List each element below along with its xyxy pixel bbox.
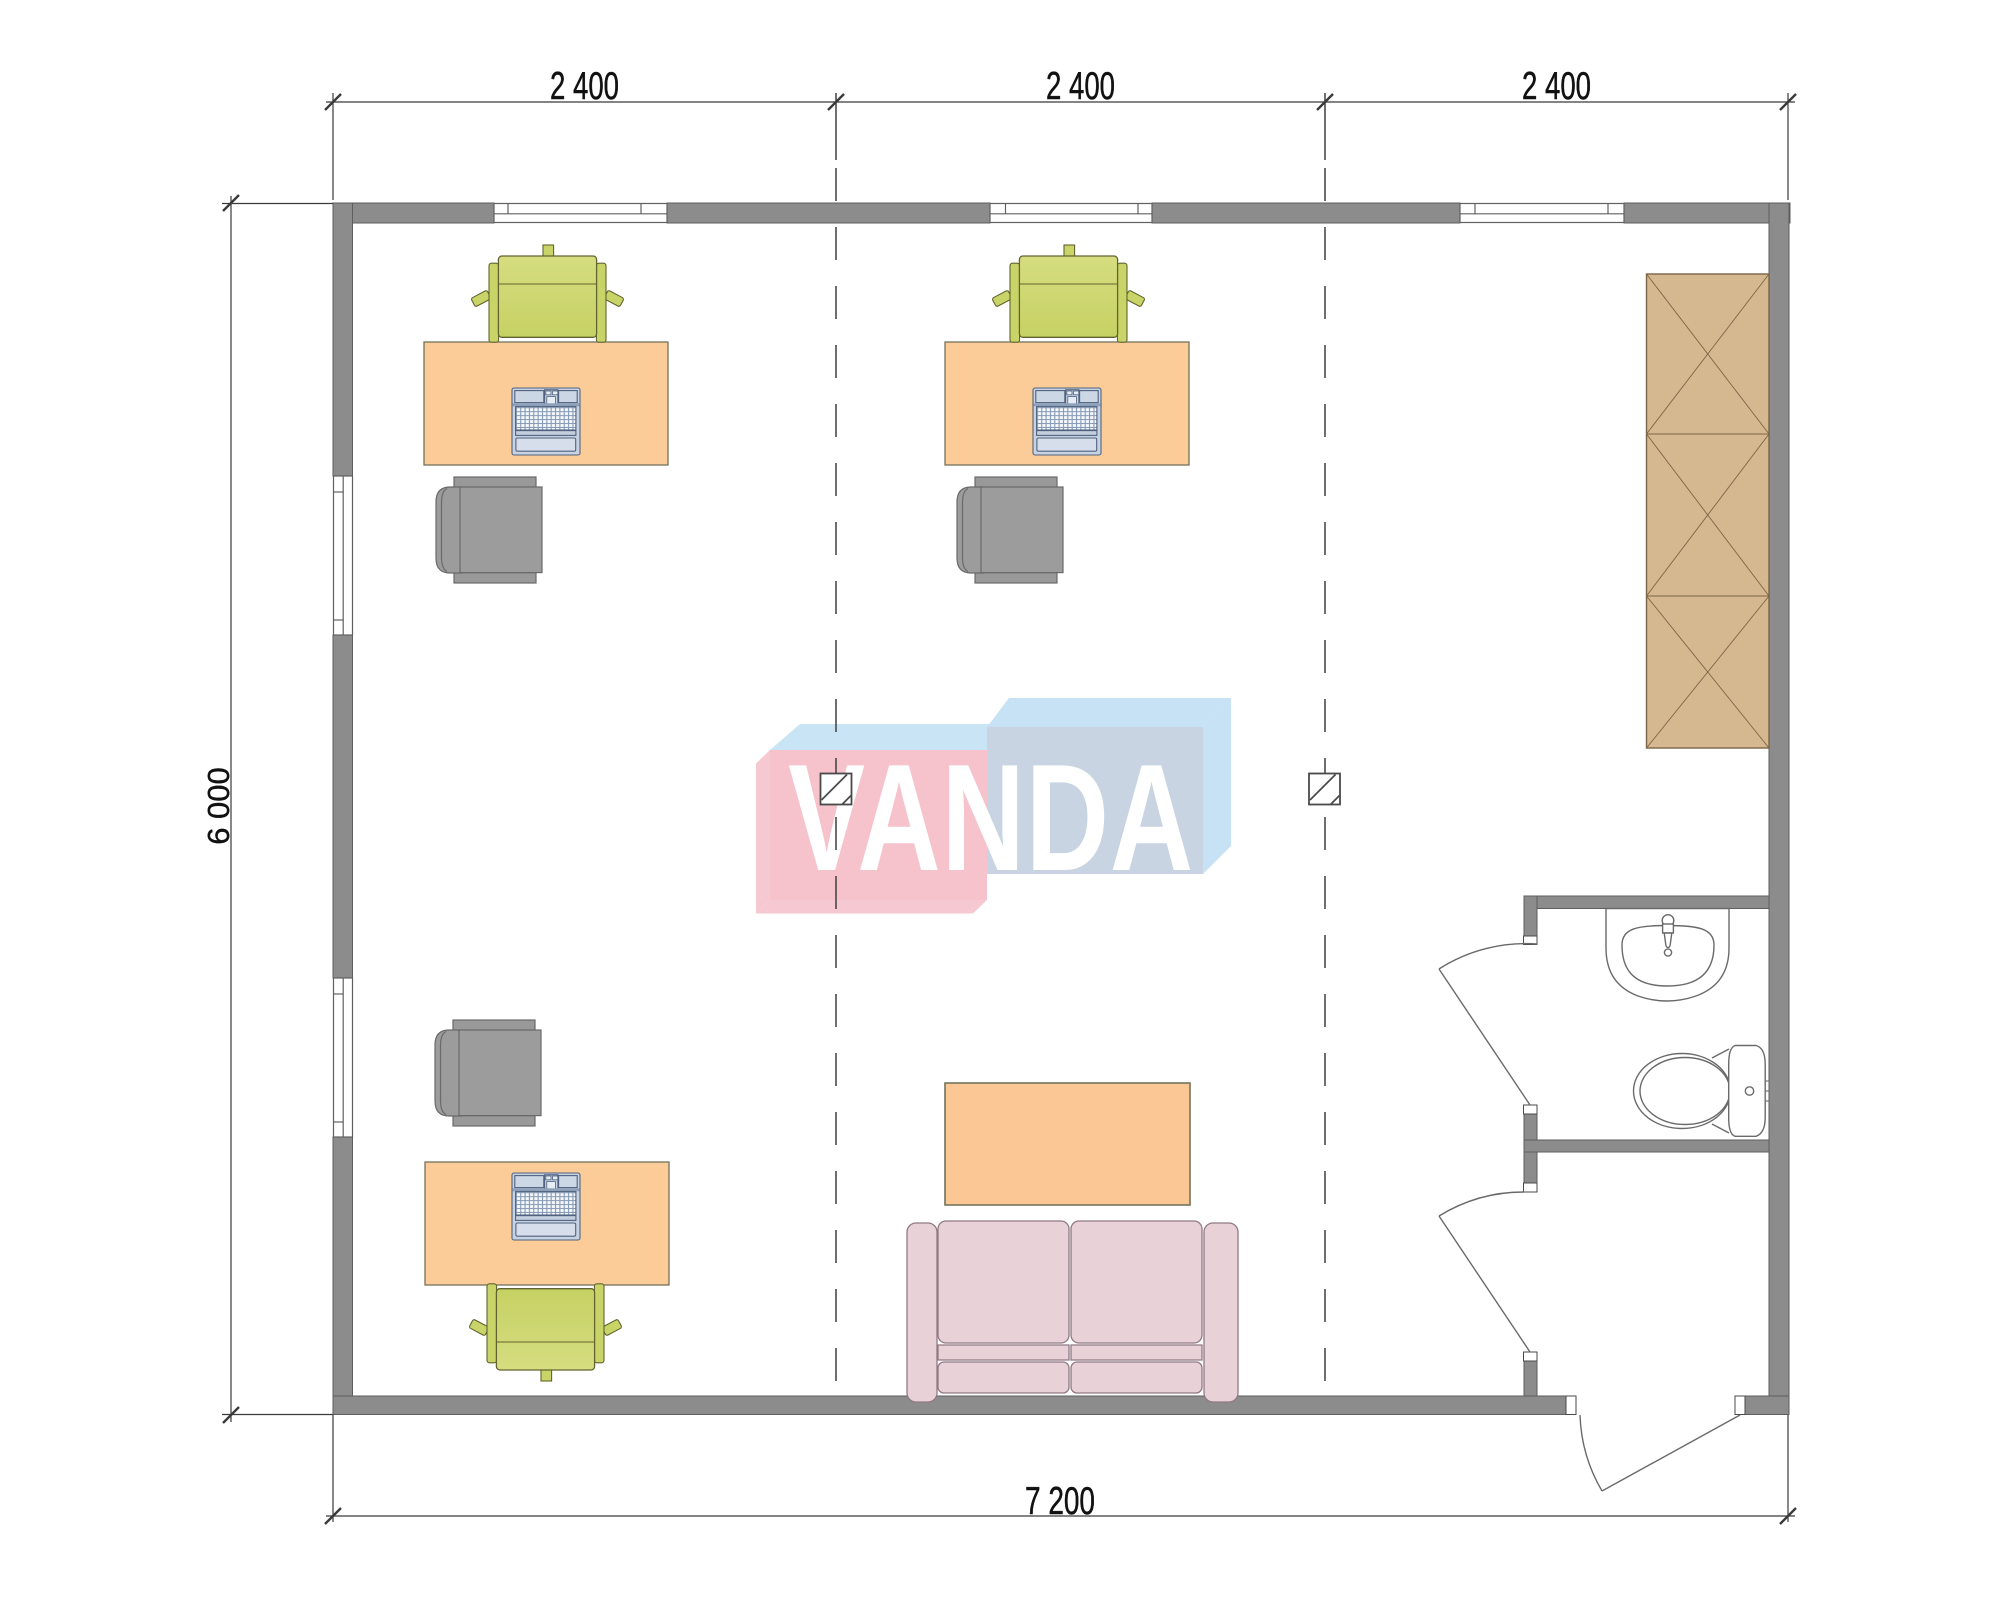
svg-text:6 000: 6 000 [201,767,236,845]
svg-text:2 400: 2 400 [1046,65,1115,108]
svg-text:2 400: 2 400 [550,65,619,108]
svg-text:2 400: 2 400 [1522,65,1591,108]
svg-text:7 200: 7 200 [1025,1480,1095,1523]
svg-text:VANDA: VANDA [788,733,1194,903]
